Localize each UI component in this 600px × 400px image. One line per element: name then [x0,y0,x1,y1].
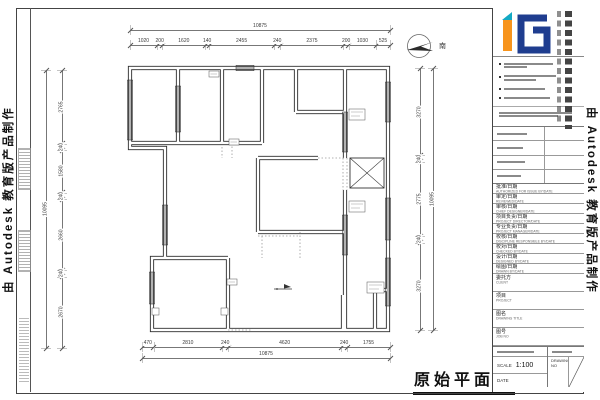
title-block-row: 审定/日期REVIEWED/DATE [493,194,584,204]
cad-drawing-sheet: 由 Autodesk 教育版产品制作 由 Autodesk 教育版产品制作 [0,0,600,400]
row-label-en: CHECKED BY/DATE [496,250,568,253]
dim-label: 200 [155,39,165,44]
row-label-en: AUTHORIZED FOR ISSUE BY/DATE [496,190,568,193]
compass-label: 南 [439,41,446,51]
row-label-en: PROJECT DIRECTOR/DATE [496,220,568,223]
dim-label: 240 [60,268,65,278]
dim-label: 240 [60,142,65,152]
row-label-en: PROJECT [496,299,568,302]
dim-label: 1755 [362,341,375,346]
dim-label: 2660 [60,228,65,241]
dim-label: 3270 [418,105,423,118]
title-block-row: 委托方CLIENT [493,274,584,292]
dim-line [130,45,390,46]
dim-label: 1030 [356,39,369,44]
dim-label: 1580 [60,165,65,178]
title-block-row: 批准/日期AUTHORIZED FOR ISSUE BY/DATE [493,184,584,194]
dim-label: 240 [418,234,423,244]
dim-label: 10095 [44,201,49,217]
dim-label: 2455 [235,39,248,44]
drawing-no-label: DRAWING NO [548,357,569,387]
title-block-row: 绘图/日期DRAWN BY/DATE [493,264,584,274]
dim-label: 240 [418,154,423,164]
dim-line [142,358,390,359]
company-name-vertical-sub [557,11,561,123]
dim-label: 470 [143,341,153,346]
dim-line [130,30,390,31]
dim-label: 3270 [418,280,423,293]
title-block-row: 设计/日期DESIGNED BY/DATE [493,254,584,264]
row-label-en: DRAWING TITLE [496,317,568,320]
title-block-row: 图名DRAWING TITLE [493,310,584,328]
scale-header [493,347,547,357]
dim-label: 10095 [431,191,436,207]
dim-label: 2810 [181,341,194,346]
title-block-row: 图号JOB NO [493,328,584,346]
company-logo-icon [493,8,553,56]
dim-label: 140 [202,39,212,44]
title-block-row: 专业负责/日期PROJECT MANAGER/DATE [493,224,584,234]
row-label-en: CHIEF DESIGNER/DATE [496,210,568,213]
scale-section: SCALE 1:100 DATE DRAWING NO [493,346,584,387]
dim-label: 2765 [60,100,65,113]
dim-label: 2670 [60,306,65,319]
dim-label: 200 [341,39,351,44]
signature-grid [493,127,584,184]
row-label-en: DISCIPLINE RESPONSIBLE BY/DATE [496,240,568,243]
compass: 南 [404,31,456,61]
dim-label: 1620 [177,39,190,44]
row-label-en: DESIGNED BY/DATE [496,260,568,263]
title-block-row: 校对/日期CHECKED BY/DATE [493,244,584,254]
revision-header [548,347,584,357]
compass-arrow-icon [404,31,456,61]
title-block-row: 项目PROJECT [493,292,584,310]
title-block: 批准/日期AUTHORIZED FOR ISSUE BY/DATE审定/日期RE… [492,8,584,392]
dim-label: 10875 [252,24,268,29]
dim-label: 10875 [258,352,274,357]
title-block-row: 校核/日期DISCIPLINE RESPONSIBLE BY/DATE [493,234,584,244]
row-label-en: CLIENT [496,281,568,284]
row-label-en: REVIEWED/DATE [496,200,568,203]
row-label-en: PROJECT MANAGER/DATE [496,230,568,233]
title-block-row: 项目负责/日期PROJECT DIRECTOR/DATE [493,214,584,224]
row-label-en: JOB NO [496,335,568,338]
company-name-vertical [565,11,572,129]
dim-label: 525 [378,39,388,44]
dim-label: 1020 [137,39,150,44]
dim-line [142,347,390,348]
dim-label: 240 [60,191,65,201]
title-block-row: 审核/日期CHIEF DESIGNER/DATE [493,204,584,214]
date-label: DATE [493,374,547,387]
dim-label: 240 [220,341,230,346]
scale-label: SCALE [497,363,512,368]
company-logo-area [493,8,584,57]
row-label-en: DRAWN BY/DATE [496,270,568,273]
title-block-rows: 批准/日期AUTHORIZED FOR ISSUE BY/DATE审定/日期RE… [493,184,584,346]
dim-label: 2775 [418,192,423,205]
dim-label: 4620 [278,341,291,346]
scale-value: 1:100 [516,362,534,369]
dim-label: 240 [272,39,282,44]
dim-label: 240 [339,341,349,346]
revision-diagonal [569,357,584,387]
dim-label: 2375 [305,39,318,44]
